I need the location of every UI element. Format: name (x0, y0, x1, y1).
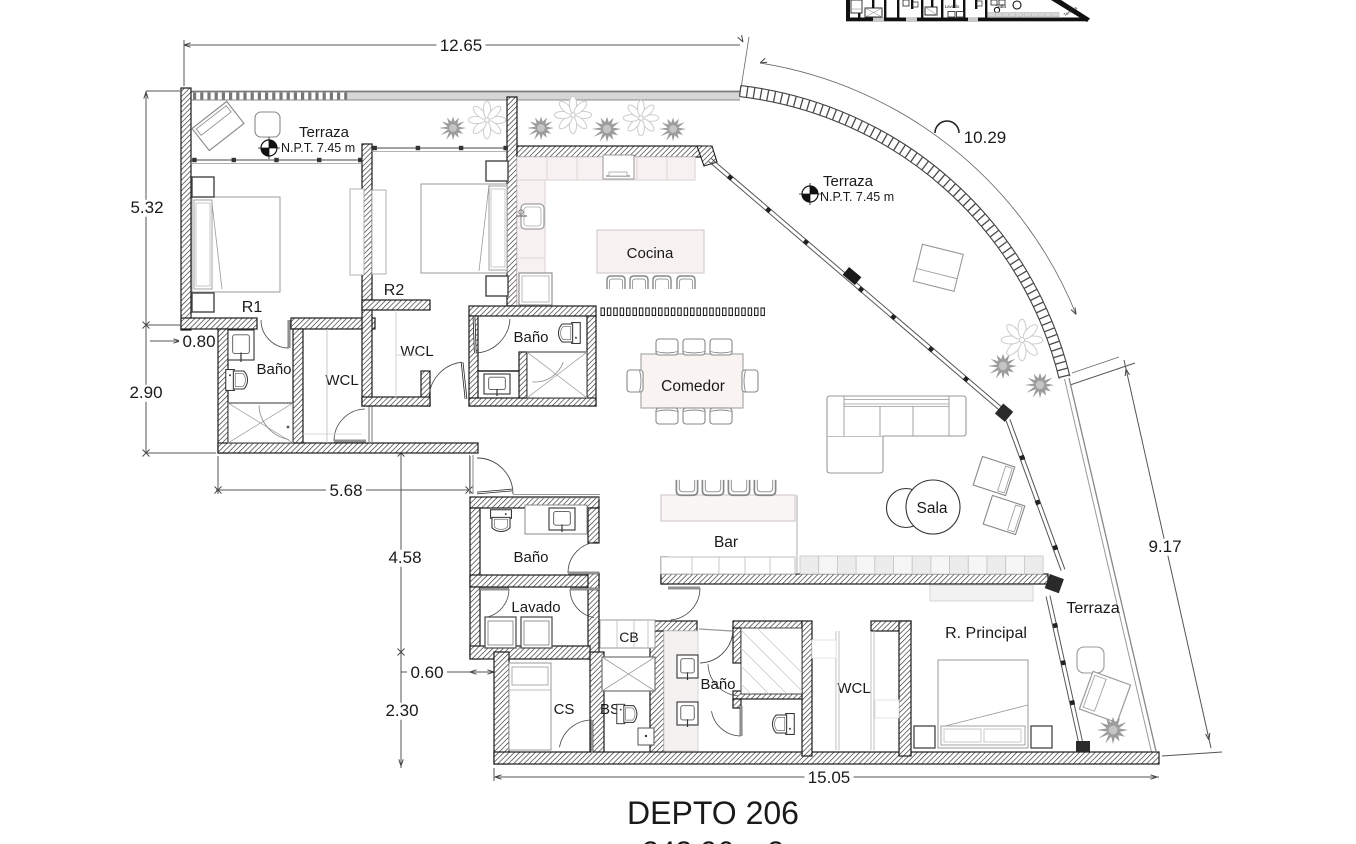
svg-text:Sala: Sala (996, 4, 1006, 10)
svg-text:Terraza: Terraza (299, 124, 350, 141)
svg-text:Sala: Sala (916, 500, 947, 517)
svg-text:9.17: 9.17 (1148, 537, 1181, 556)
svg-text:Terraza: Terraza (1066, 600, 1119, 617)
svg-text:WCL: WCL (325, 372, 358, 389)
svg-text:Terraza: Terraza (823, 173, 874, 190)
svg-text:WCL: WCL (837, 680, 870, 697)
svg-text:Lavado: Lavado (945, 4, 960, 9)
svg-text:Baño: Baño (513, 329, 548, 346)
svg-text:4.58: 4.58 (388, 548, 421, 567)
svg-text:15.05: 15.05 (808, 768, 851, 787)
svg-text:Comedor: Comedor (661, 378, 725, 395)
svg-text:Bar: Bar (714, 534, 738, 551)
svg-text:N.P.T. 7.45 m: N.P.T. 7.45 m (281, 141, 355, 155)
svg-text:Baño: Baño (513, 549, 548, 566)
svg-text:2.90: 2.90 (129, 383, 162, 402)
svg-text:R2: R2 (384, 282, 405, 299)
svg-text:12.65: 12.65 (440, 36, 483, 55)
svg-text:10.29: 10.29 (964, 128, 1007, 147)
svg-text:Cocina: Cocina (627, 245, 674, 262)
svg-text:0.60: 0.60 (410, 663, 443, 682)
svg-text:WCL: WCL (400, 343, 433, 360)
svg-text:2.30: 2.30 (385, 701, 418, 720)
svg-text:5.68: 5.68 (329, 481, 362, 500)
svg-text:243.96 m2: 243.96 m2 (642, 836, 784, 844)
svg-text:Baño: Baño (700, 676, 735, 693)
svg-text:CB: CB (619, 629, 638, 645)
svg-text:Baño: Baño (256, 361, 291, 378)
svg-text:CS: CS (554, 701, 575, 718)
svg-text:0.80: 0.80 (182, 332, 215, 351)
svg-text:Lavado: Lavado (511, 599, 560, 616)
svg-text:5.32: 5.32 (130, 198, 163, 217)
svg-text:R. Principal: R. Principal (945, 625, 1027, 642)
svg-text:R1: R1 (242, 299, 263, 316)
svg-text:N.P.T. 7.45 m: N.P.T. 7.45 m (820, 190, 894, 204)
svg-text:DEPTO 206: DEPTO 206 (627, 795, 799, 831)
